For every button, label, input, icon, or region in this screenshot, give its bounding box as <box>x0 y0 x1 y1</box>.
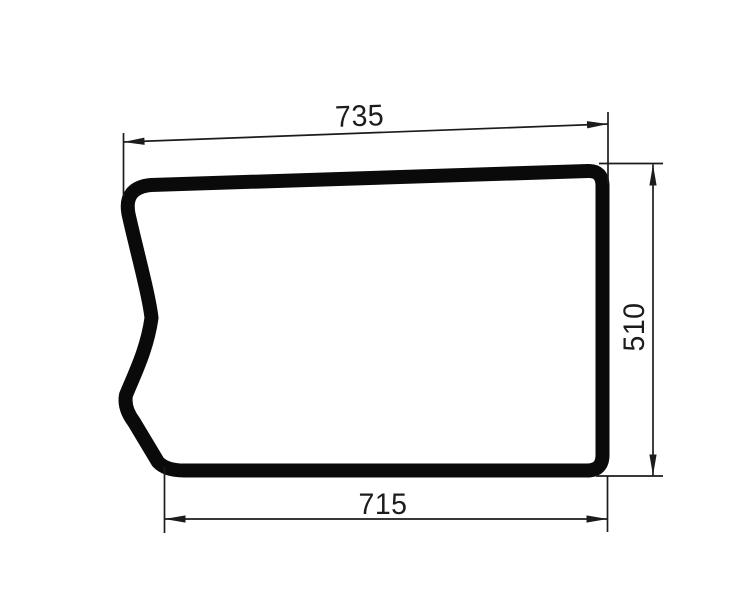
dimension-arrow-icon <box>587 120 608 128</box>
technical-drawing: 735 510 715 <box>0 0 750 600</box>
dimension-arrow-icon <box>649 455 656 476</box>
dimension-arrow-icon <box>649 165 656 186</box>
dimension-arrow-icon <box>165 515 186 522</box>
dimension-arrow-icon <box>123 138 144 146</box>
dimension-value-top-width: 735 <box>335 99 385 134</box>
drawing-stage: 735 510 715 <box>0 0 750 600</box>
glass-panel-outline <box>126 171 603 471</box>
dimension-value-bottom-width: 715 <box>359 488 408 521</box>
dimension-arrow-icon <box>587 515 608 522</box>
dimension-value-right-height: 510 <box>618 303 651 352</box>
